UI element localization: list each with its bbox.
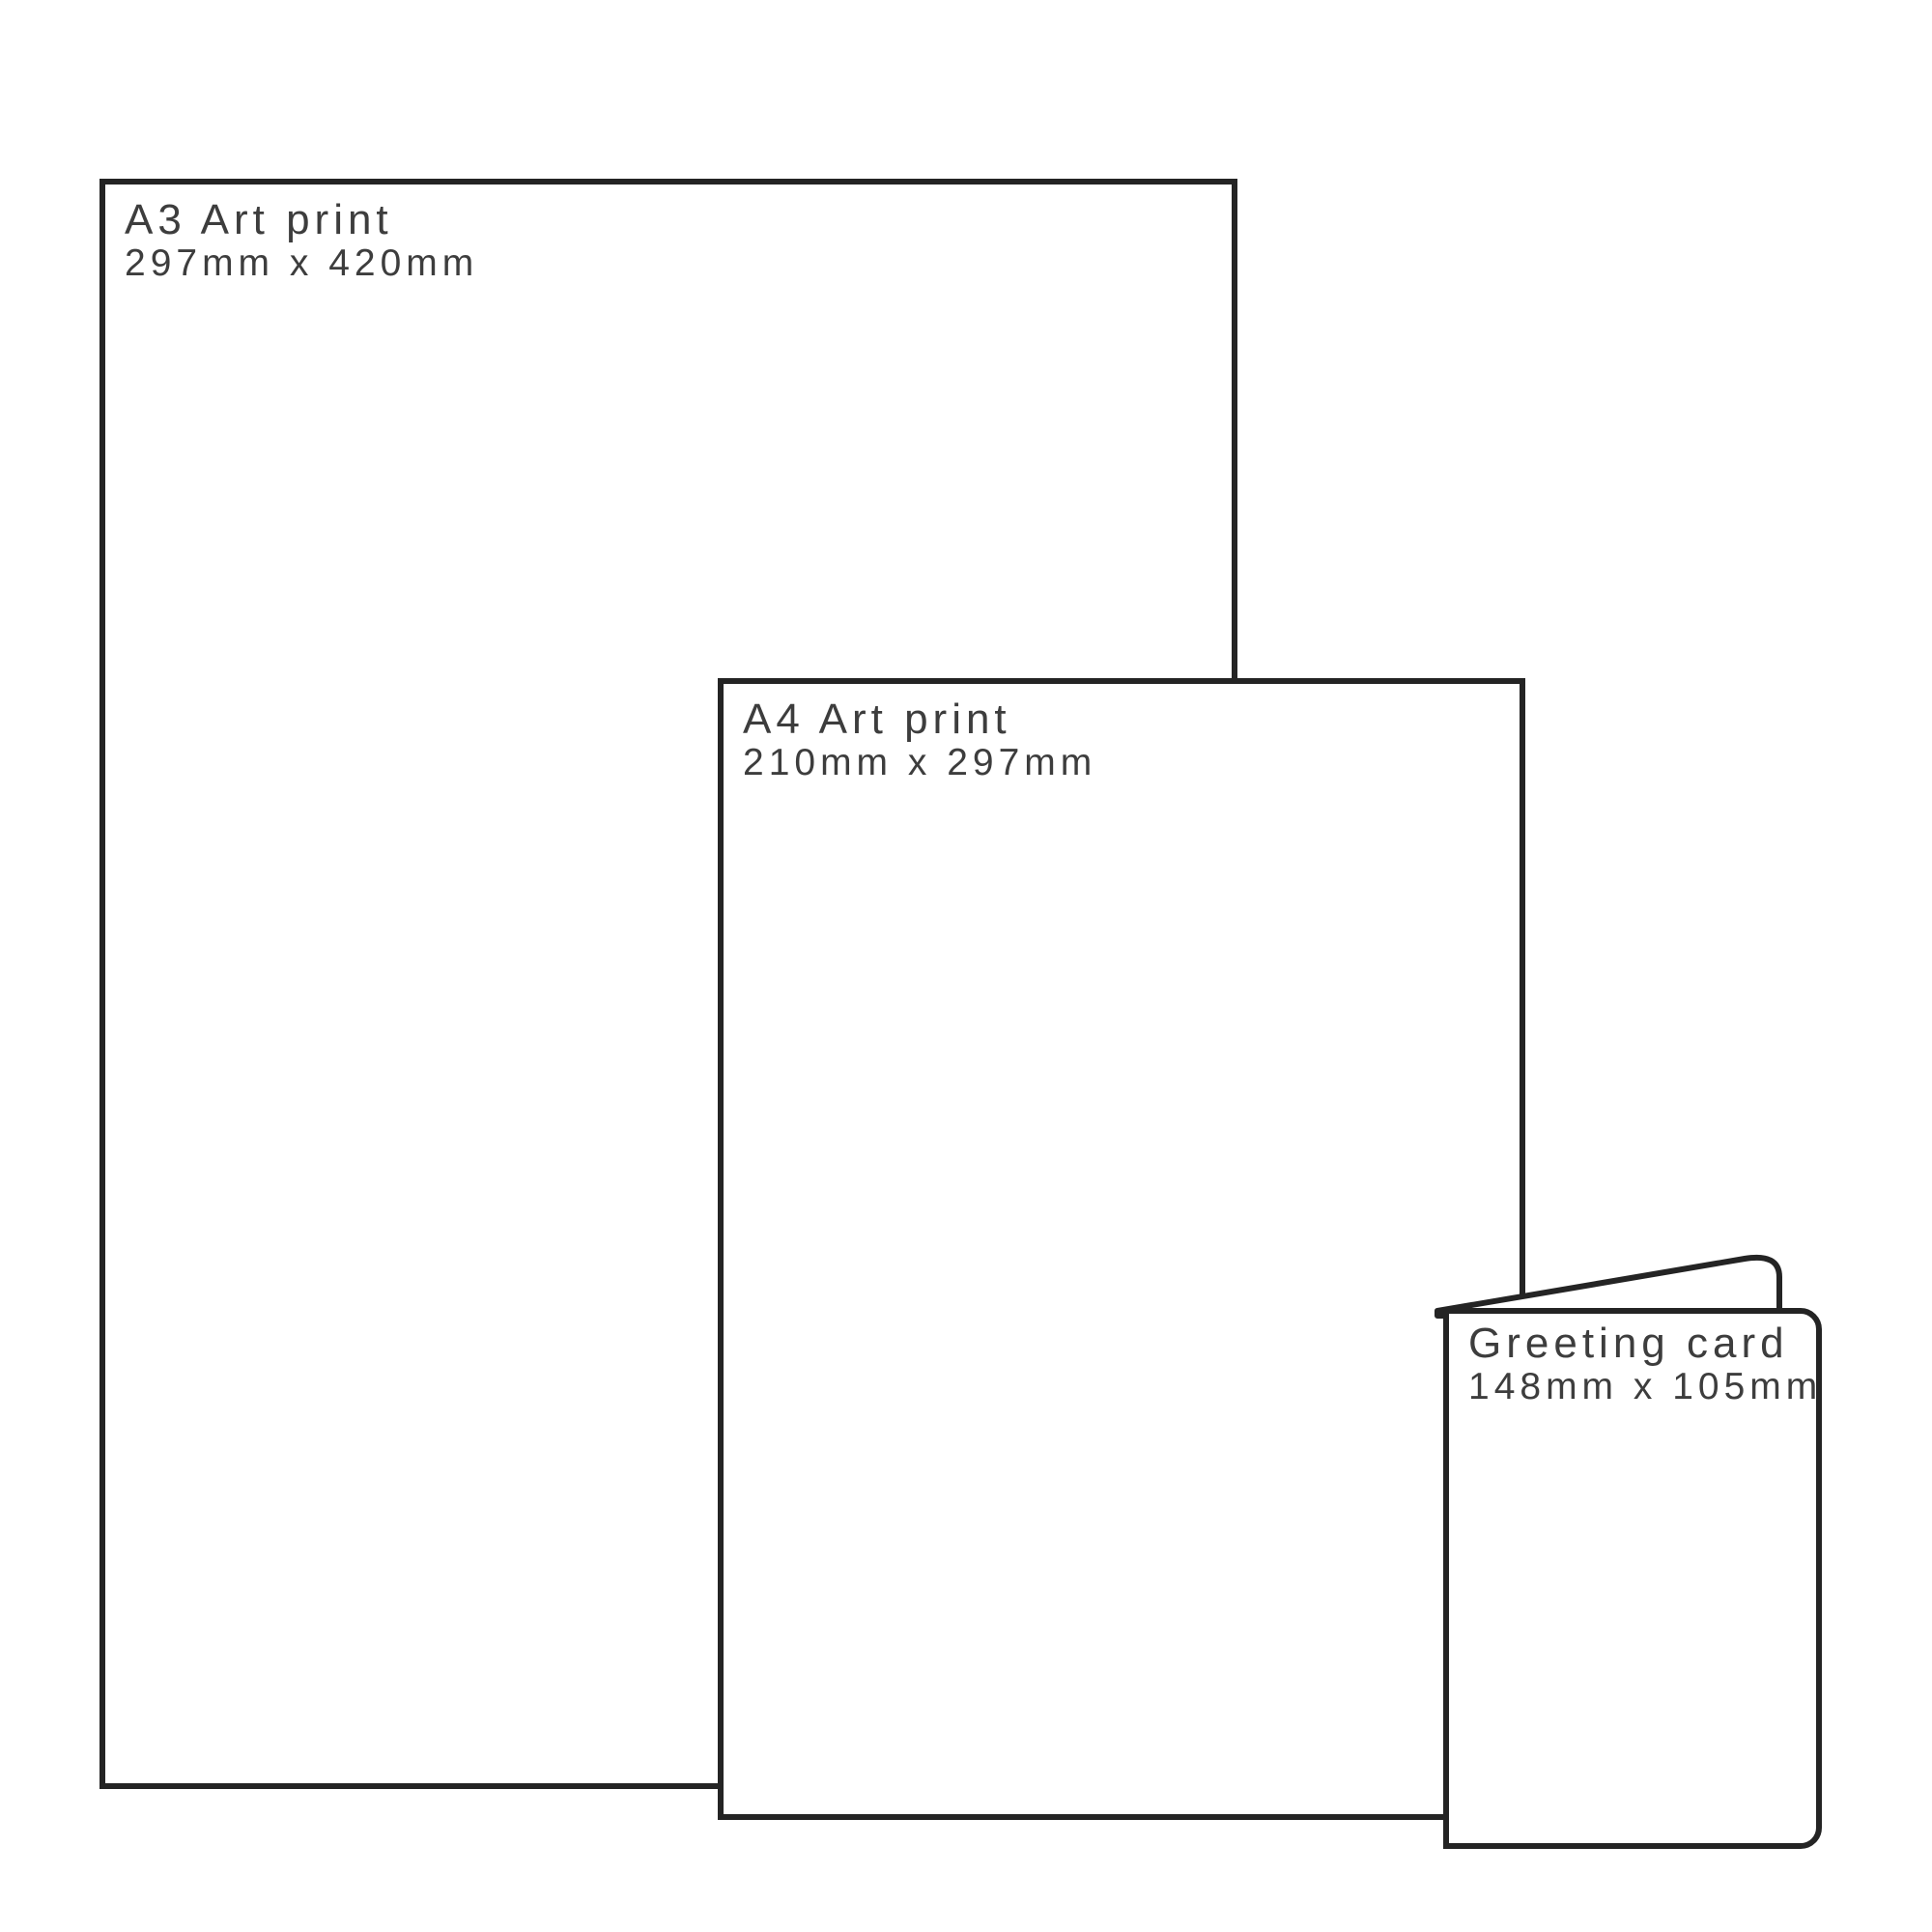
greeting-card-front: Greeting card 148mm x 105mm — [1443, 1308, 1822, 1849]
a3-label: A3 Art print 297mm x 420mm — [105, 185, 1232, 286]
a4-title: A4 Art print — [743, 697, 1520, 742]
print-size-comparison-diagram: A3 Art print 297mm x 420mm A4 Art print … — [0, 0, 1932, 1932]
a3-dimensions: 297mm x 420mm — [125, 242, 1232, 286]
a4-label: A4 Art print 210mm x 297mm — [724, 684, 1520, 785]
greeting-card-label: Greeting card 148mm x 105mm — [1449, 1314, 1816, 1409]
greeting-card-dimensions: 148mm x 105mm — [1468, 1366, 1816, 1409]
a4-dimensions: 210mm x 297mm — [743, 742, 1520, 785]
a3-title: A3 Art print — [125, 198, 1232, 242]
greeting-card-title: Greeting card — [1468, 1321, 1816, 1366]
a4-sheet-outline: A4 Art print 210mm x 297mm — [718, 678, 1525, 1820]
